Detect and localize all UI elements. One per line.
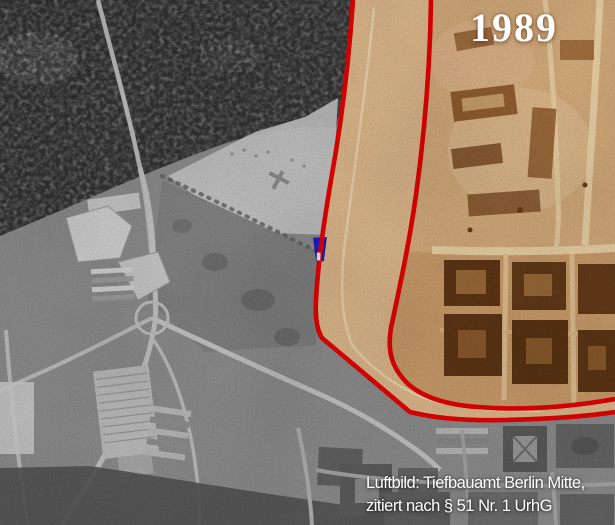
aerial-photo-1989: 1989 Luftbild: Tiefbauamt Berlin Mitte, … [0,0,615,525]
square-courtyard-building [503,426,547,472]
plaza [0,382,34,454]
aerial-photo-canvas [0,0,615,525]
attribution-line-1: Luftbild: Tiefbauamt Berlin Mitte, [366,472,585,495]
attribution-line-2: zitiert nach § 51 Nr. 1 UrhG [366,495,585,518]
marker-notch [317,252,321,260]
attribution: Luftbild: Tiefbauamt Berlin Mitte, zitie… [366,472,585,519]
year-label: 1989 [470,4,558,51]
